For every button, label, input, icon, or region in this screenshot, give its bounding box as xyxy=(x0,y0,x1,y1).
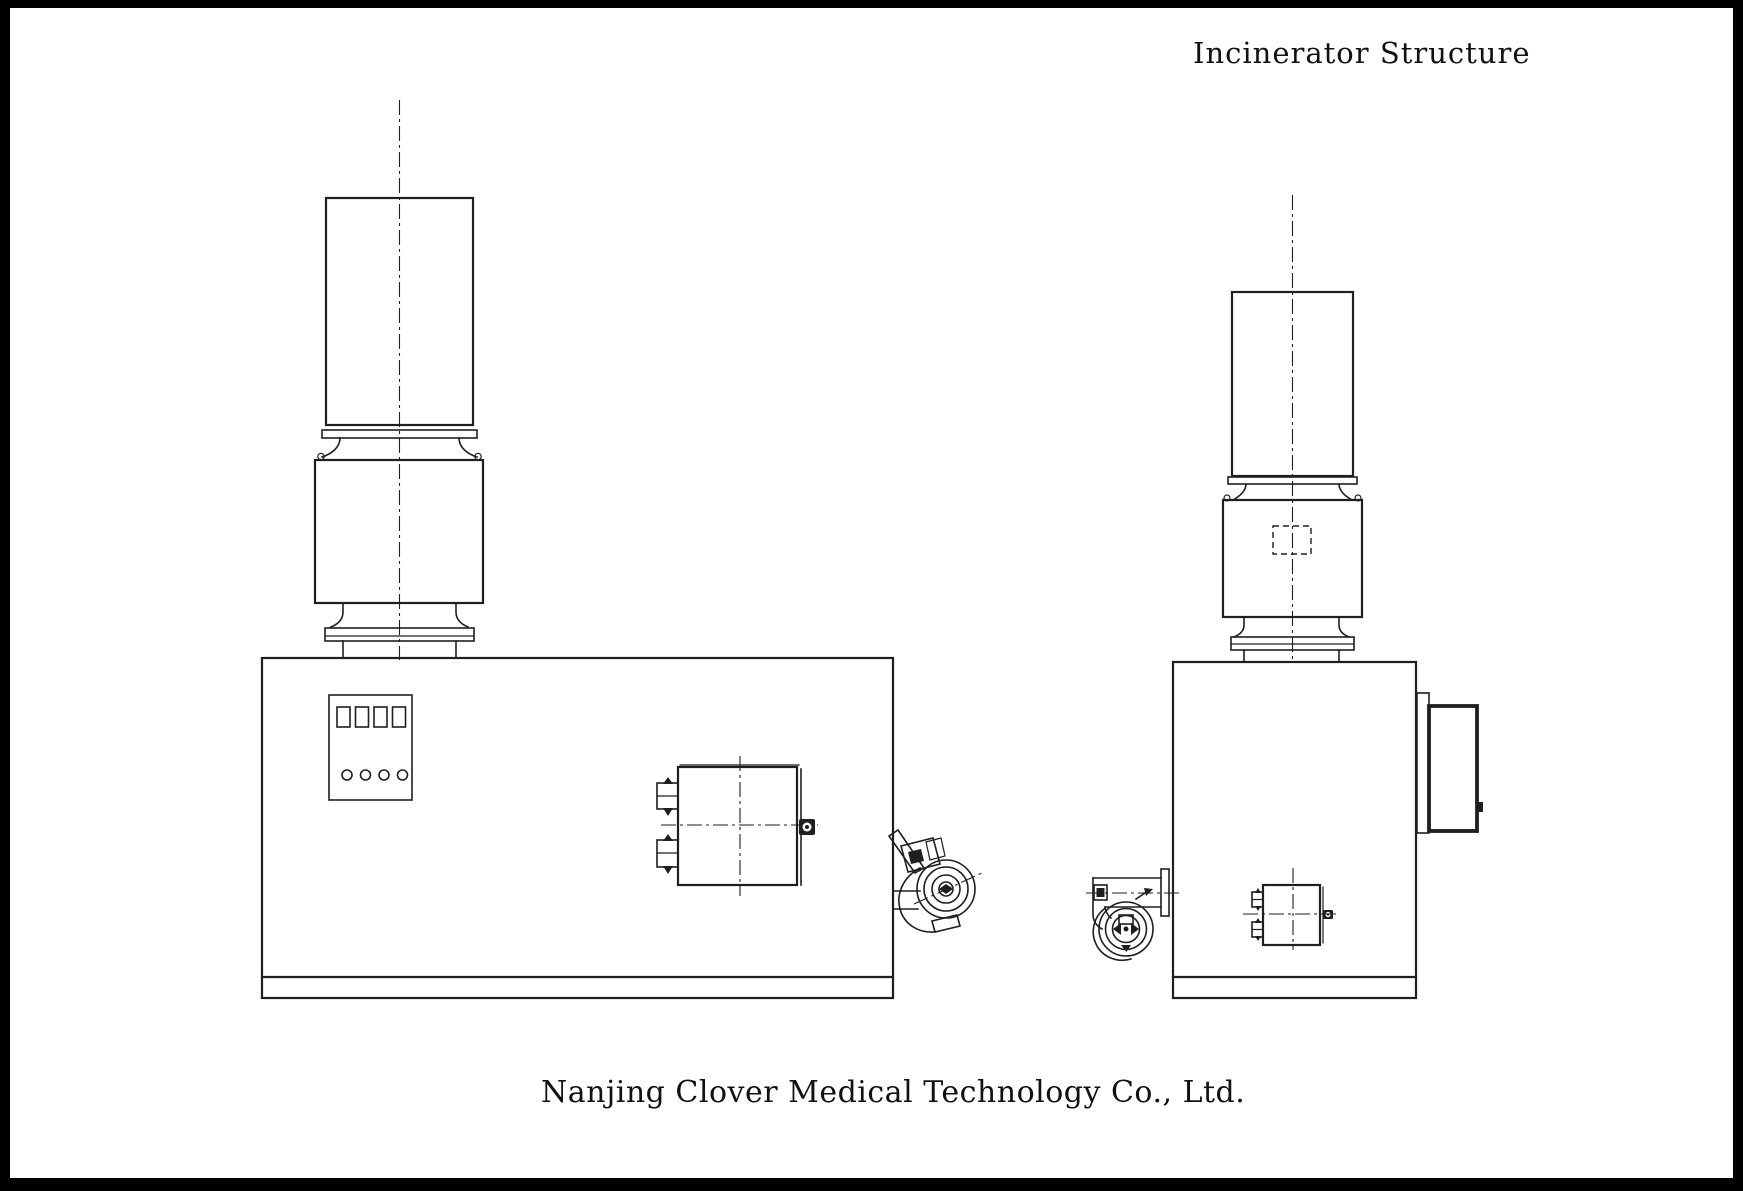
fuel-inlet-connector xyxy=(657,777,678,816)
fuel-inlet-connector xyxy=(657,834,678,874)
company-name: Nanjing Clover Medical Technology Co., L… xyxy=(541,1075,1241,1110)
fan-mount-arms xyxy=(893,891,920,909)
incinerator-front-view xyxy=(262,100,982,998)
fuel-inlet-connector xyxy=(1252,888,1263,911)
flue-pipe xyxy=(1244,650,1339,662)
incinerator-side-view xyxy=(1086,195,1483,998)
indicator-light xyxy=(379,770,389,780)
neck-flare xyxy=(1234,617,1244,637)
drawing-sheet: Incinerator Structure Nanjing Clover Med… xyxy=(0,0,1743,1191)
side-door[interactable] xyxy=(1417,693,1483,833)
burner-box xyxy=(657,756,818,896)
panel-switch[interactable] xyxy=(356,707,369,727)
flow-arrow-head xyxy=(1144,888,1153,896)
neck-flare xyxy=(459,438,477,457)
fan-hub-key xyxy=(1131,923,1139,935)
burner-housing xyxy=(1263,885,1320,945)
incinerator-structure-drawing xyxy=(0,0,1743,1191)
burner-housing xyxy=(678,767,797,885)
main-chamber xyxy=(262,658,893,998)
neck-flare xyxy=(322,438,340,457)
sheet-title: Incinerator Structure xyxy=(1193,36,1523,70)
door-panel[interactable] xyxy=(1429,706,1477,831)
blower-fan xyxy=(1086,869,1181,960)
neck-flare xyxy=(1339,617,1349,637)
indicator-light xyxy=(342,770,352,780)
control-panel-box xyxy=(329,695,412,800)
neck-flare xyxy=(1339,484,1352,500)
indicator-light xyxy=(361,770,371,780)
main-chamber xyxy=(1173,662,1416,998)
fuel-inlet-connector xyxy=(1252,918,1263,941)
door-latch[interactable] xyxy=(1477,802,1483,812)
neck-flare xyxy=(456,603,468,627)
neck-flare xyxy=(1233,484,1246,500)
panel-switch[interactable] xyxy=(393,707,406,727)
valve-fitting xyxy=(799,819,815,835)
fan-motor-block xyxy=(908,849,924,864)
neck-flare xyxy=(331,603,343,627)
burner-box xyxy=(1243,868,1337,950)
blower-fan xyxy=(889,830,982,932)
indicator-light xyxy=(398,770,408,780)
panel-switch[interactable] xyxy=(374,707,387,727)
fan-hub-key xyxy=(1113,923,1121,935)
panel-switch[interactable] xyxy=(337,707,350,727)
control-panel[interactable] xyxy=(329,695,412,800)
fan-hub xyxy=(1124,927,1129,932)
fan-volute xyxy=(899,868,934,932)
